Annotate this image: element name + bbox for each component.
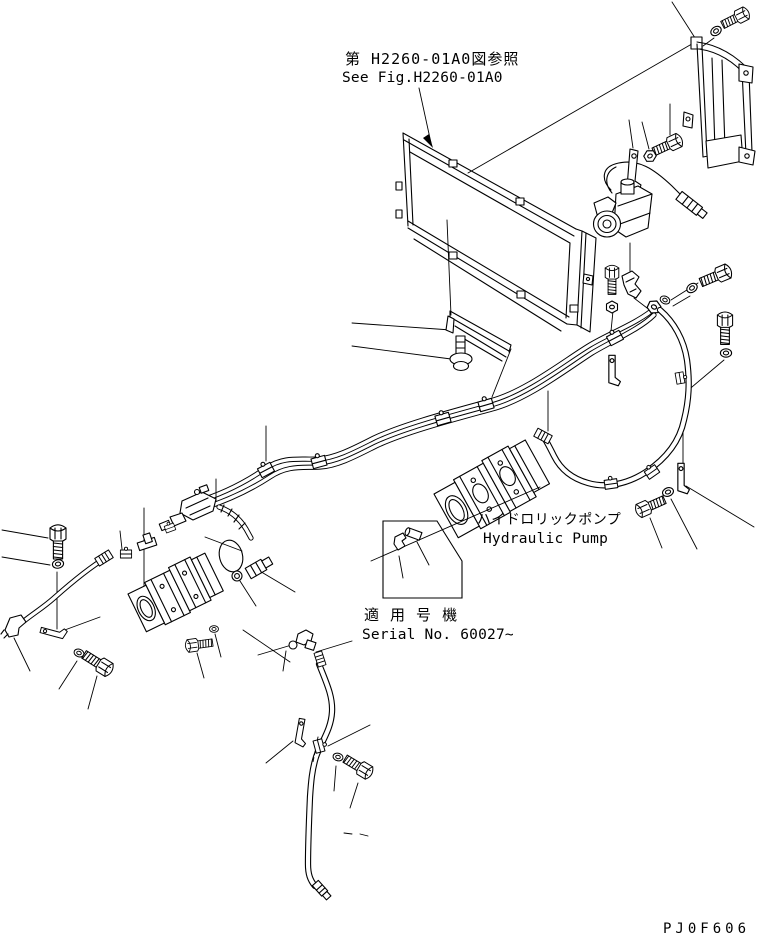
clamp-bracket xyxy=(40,623,68,639)
harness-plug xyxy=(676,191,708,219)
fig-ref-arrowhead xyxy=(423,134,433,148)
elbow-fitting xyxy=(245,555,274,578)
hose-fitting xyxy=(534,428,553,444)
guard-frame-group xyxy=(352,133,596,371)
drain-hose-group xyxy=(258,630,375,901)
elbow-fitting xyxy=(622,271,641,298)
pump-label-jp: ハイドロリックポンプ xyxy=(477,512,621,528)
hose-end-washer xyxy=(659,294,671,305)
hose-clip xyxy=(394,533,406,550)
serial-callout-box xyxy=(383,521,462,598)
hex-bolt xyxy=(80,648,116,678)
hose-clamp xyxy=(604,476,618,490)
clamp-bracket xyxy=(678,463,690,493)
hex-bolt xyxy=(633,493,667,519)
pilot-pump xyxy=(125,550,225,633)
hose-fitting xyxy=(95,550,114,566)
drain-elbow xyxy=(289,630,316,650)
valve-bolt xyxy=(605,265,619,294)
fig-reference-callout: 第 H2260-01A0図参照 See Fig.H2260-01A0 xyxy=(342,50,519,148)
hose-fitting xyxy=(314,651,326,667)
bellows-hose xyxy=(219,507,251,538)
valve-nut xyxy=(607,301,618,313)
hydraulic-pump-group: ハイドロリックポンプ Hydraulic Pump xyxy=(431,437,621,547)
hose-end-fitting xyxy=(312,880,331,900)
serial-label-jp: 適 用 号 機 xyxy=(364,606,458,624)
plug-fitting xyxy=(404,527,422,540)
panel-washer-top xyxy=(709,24,723,37)
hose-clamp xyxy=(310,452,327,469)
small-washer xyxy=(232,571,242,581)
clamp-bracket xyxy=(609,355,621,385)
washer xyxy=(720,349,731,357)
solenoid-valve xyxy=(594,179,653,237)
part-code-label: PJ0F606 xyxy=(663,921,750,937)
pump-label-en: Hydraulic Pump xyxy=(483,531,608,547)
corner-panel-group xyxy=(468,2,755,173)
elbow-fitting xyxy=(1,615,26,638)
hex-bolt xyxy=(185,636,214,652)
fig-ref-label-en: See Fig.H2260-01A0 xyxy=(342,70,503,86)
pilot-pump-group xyxy=(1,479,295,709)
hex-bolt xyxy=(341,752,375,780)
washer xyxy=(52,559,64,569)
fig-ref-label-jp: 第 H2260-01A0図参照 xyxy=(345,50,519,68)
tee-fitting xyxy=(137,533,157,551)
hose-bundle-group xyxy=(196,294,671,510)
hex-bolt xyxy=(698,263,734,290)
parts-diagram: 第 H2260-01A0図参照 See Fig.H2260-01A0 xyxy=(0,0,760,941)
guard-frame xyxy=(396,133,596,332)
washer xyxy=(332,752,344,762)
hex-bolt xyxy=(50,525,66,559)
corner-panel xyxy=(683,37,755,168)
clamp-bracket xyxy=(295,718,310,747)
washer xyxy=(210,626,219,633)
panel-bolt-top xyxy=(719,6,751,31)
hex-bolt xyxy=(717,312,732,344)
serial-label-en: Serial No. 60027~ xyxy=(362,627,514,643)
